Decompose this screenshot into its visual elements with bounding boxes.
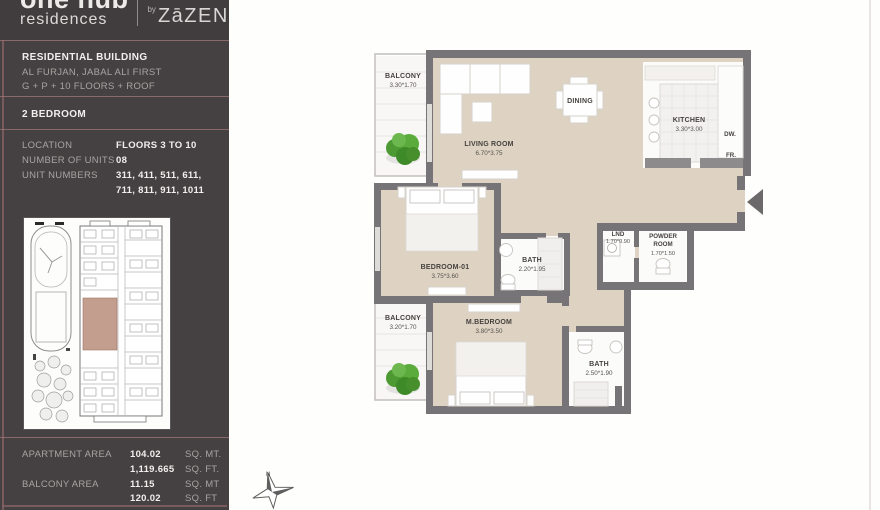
apartment-area-sqft-unit: SQ. FT. xyxy=(185,464,219,475)
divider xyxy=(0,437,229,438)
label-fridge: FR. xyxy=(726,152,736,159)
building-title: RESIDENTIAL BUILDING xyxy=(22,52,148,63)
unit-numbers-value1: 311, 411, 511, 611, xyxy=(116,170,201,181)
room-dim-lnd: 1.70*0.90 xyxy=(606,239,630,245)
logo-wordmark: one hub residences xyxy=(20,0,128,28)
divider xyxy=(0,96,229,97)
room-dim-living: 6.70*3.75 xyxy=(476,150,503,157)
room-label-kitchen: KITCHEN xyxy=(673,117,706,124)
sidebar: one hub residences by ZāZEN RESIDENTIAL … xyxy=(0,0,229,510)
unit-type: 2 BEDROOM xyxy=(22,109,86,120)
units-label: NUMBER OF UNITS xyxy=(22,155,115,166)
logo-separator xyxy=(137,0,138,26)
balcony-area-sqm-unit: SQ. MT xyxy=(185,479,220,490)
sidebar-accent-line-bottom xyxy=(2,505,227,507)
balcony-area-sqm: 11.15 xyxy=(130,479,155,490)
room-dim-bath2: 2.50*1.90 xyxy=(586,370,613,377)
room-label-mbedroom: M.BEDROOM xyxy=(466,319,512,326)
key-plan xyxy=(24,218,170,429)
apartment-area-sqm: 104.02 xyxy=(130,449,161,460)
room-label-bath2: BATH xyxy=(589,361,609,368)
key-plan-graphic xyxy=(24,218,170,429)
room-dim-powder: 1.70*1.50 xyxy=(651,251,675,257)
room-label-bath1: BATH xyxy=(522,257,542,264)
room-label-balcony-bottom: BALCONY xyxy=(385,315,421,322)
apartment-area-label: APARTMENT AREA xyxy=(22,449,112,460)
room-label-balcony-top: BALCONY xyxy=(385,73,421,80)
page-edge xyxy=(869,0,871,510)
room-label-living: LIVING ROOM xyxy=(464,141,513,148)
key-plan-highlighted-unit xyxy=(83,298,117,350)
room-dim-bedroom1: 3.75*3.60 xyxy=(432,273,459,280)
balcony-area-sqft-unit: SQ. FT xyxy=(185,493,217,504)
room-dim-balcony-top: 3.30*1.70 xyxy=(390,82,417,89)
room-label-dining: DINING xyxy=(567,98,593,105)
room-label-powder-1: POWDER xyxy=(649,233,677,240)
room-dim-mbedroom: 3.80*3.50 xyxy=(476,328,503,335)
room-label-bedroom1: BEDROOM-01 xyxy=(421,264,470,271)
logo-line2: residences xyxy=(20,12,128,28)
apartment-area-sqft: 1,119.665 xyxy=(130,464,174,475)
room-dim-bath1: 2.20*1.95 xyxy=(519,266,546,273)
compass-north-label: N xyxy=(266,472,270,478)
logo-brand-name: ZāZEN xyxy=(158,6,229,26)
room-label-lnd: LND xyxy=(612,231,625,238)
unit-numbers-value2: 711, 811, 911, 1011 xyxy=(116,185,204,196)
floor-plan: BALCONY 3.30*1.70 LIVING ROOM 6.70*3.75 … xyxy=(365,38,767,430)
divider xyxy=(0,40,229,41)
brand-logo: one hub residences by ZāZEN xyxy=(0,0,229,40)
location-value: FLOORS 3 TO 10 xyxy=(116,140,197,151)
location-label: LOCATION xyxy=(22,140,72,151)
entry-arrow-icon xyxy=(747,189,763,215)
compass-icon: N xyxy=(240,468,304,510)
powder-room-fixtures xyxy=(656,259,670,275)
label-dishwasher: DW. xyxy=(724,131,736,138)
divider xyxy=(0,129,229,130)
unit-numbers-label: UNIT NUMBERS xyxy=(22,170,98,181)
room-dim-kitchen: 3.30*3.00 xyxy=(676,126,703,133)
sidebar-accent-line xyxy=(2,0,4,510)
balcony-area-label: BALCONY AREA xyxy=(22,479,99,490)
brochure-page: one hub residences by ZāZEN RESIDENTIAL … xyxy=(0,0,880,510)
balcony-area-sqft: 120.02 xyxy=(130,493,161,504)
room-label-powder-2: ROOM xyxy=(653,241,672,248)
logo-by: by xyxy=(147,6,155,14)
units-value: 08 xyxy=(116,155,127,166)
apartment-area-sqm-unit: SQ. MT. xyxy=(185,449,221,460)
room-dim-balcony-bottom: 3.20*1.70 xyxy=(390,324,417,331)
building-address: AL FURJAN, JABAL ALI FIRST xyxy=(22,67,162,78)
building-floors: G + P + 10 FLOORS + ROOF xyxy=(22,81,155,92)
